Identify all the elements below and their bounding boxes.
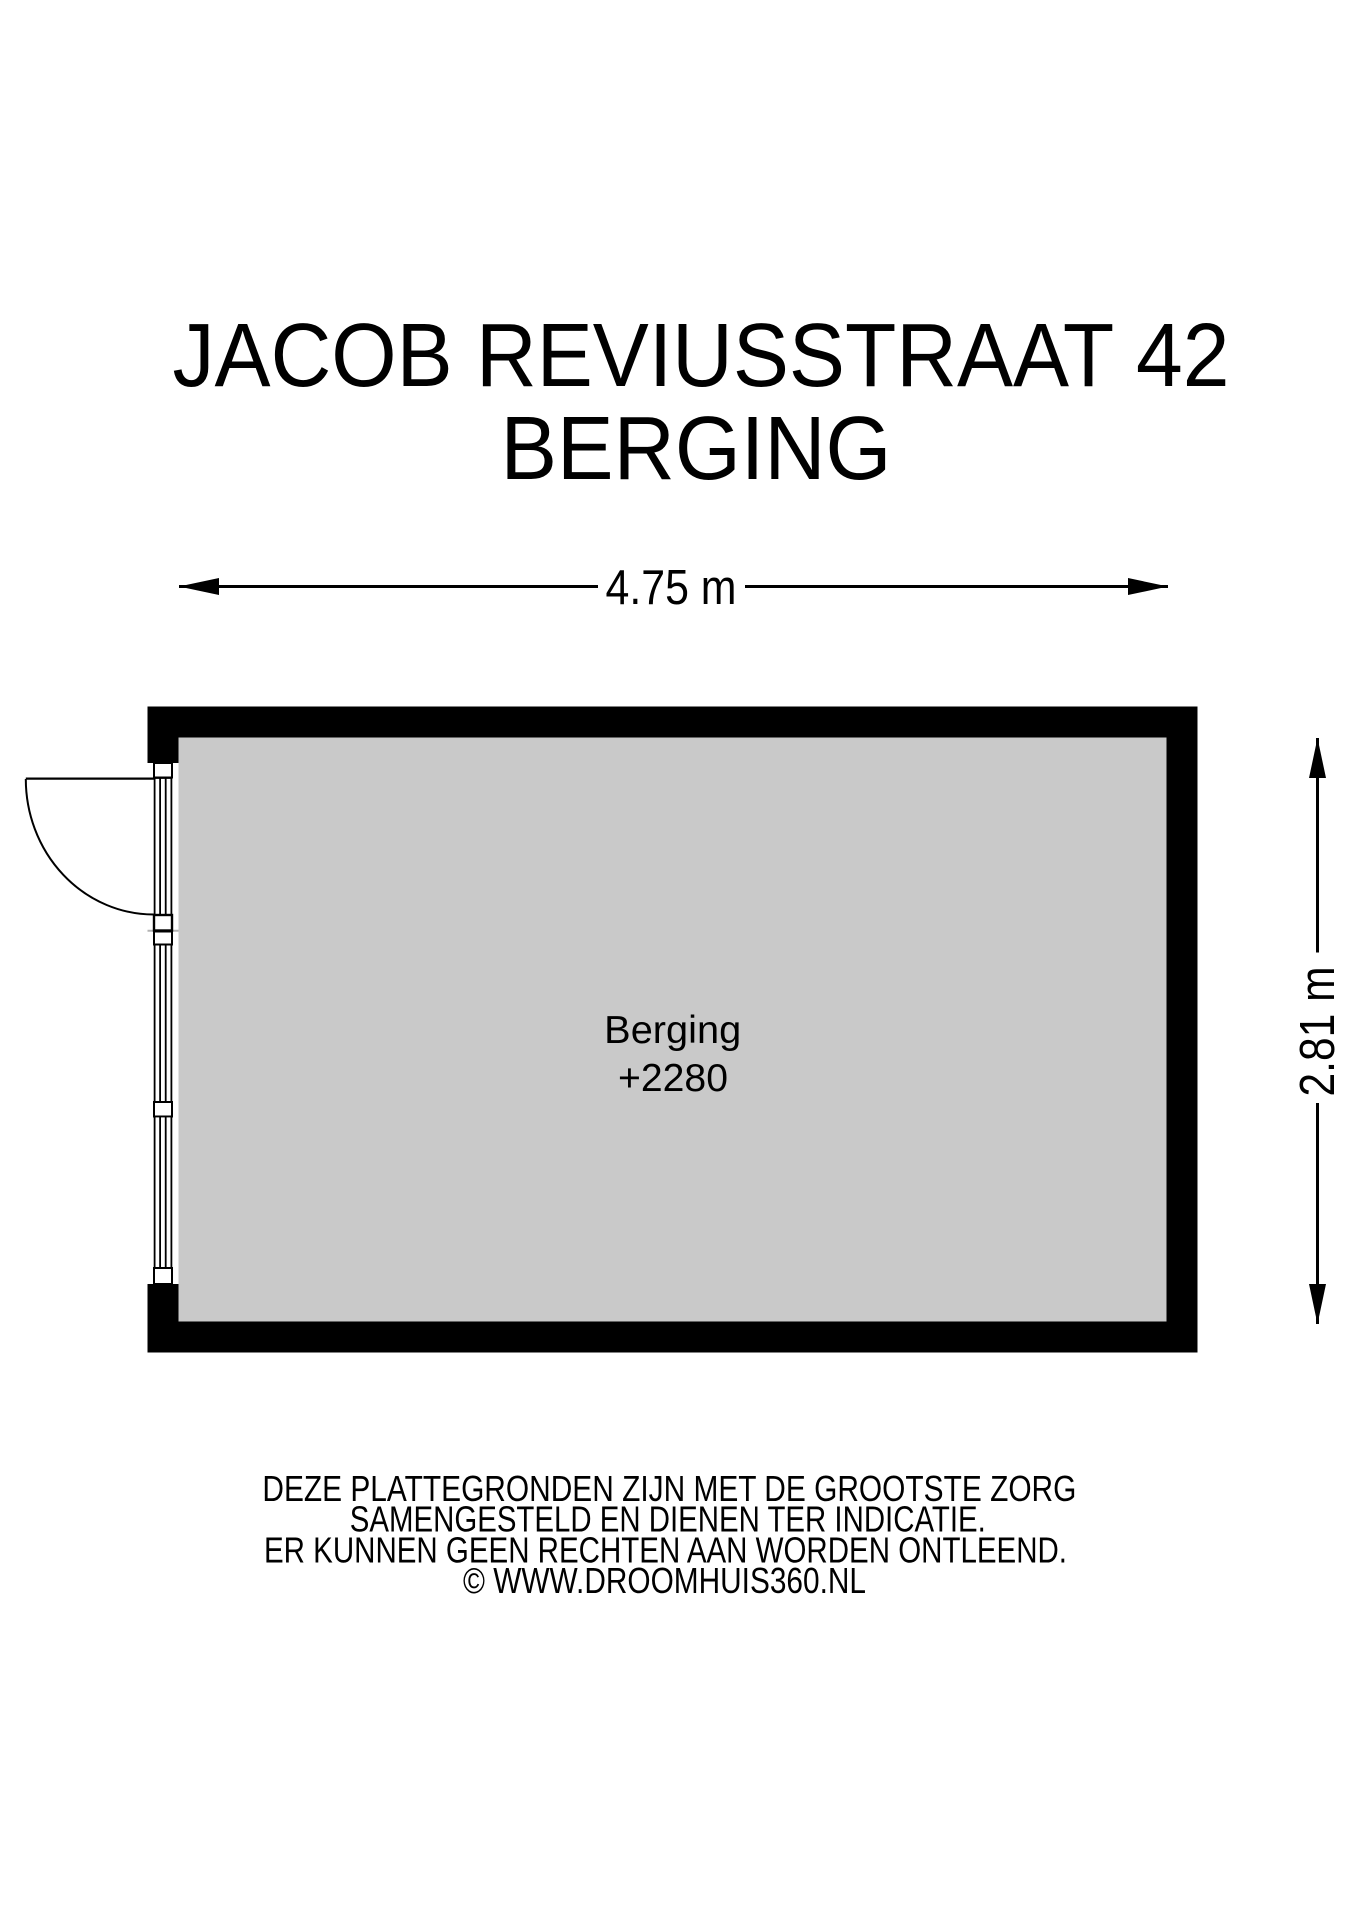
svg-text:4.75 m: 4.75 m [606, 561, 737, 615]
svg-text:JACOB REVIUSSTRAAT 42: JACOB REVIUSSTRAAT 42 [173, 306, 1230, 406]
svg-text:2.81 m: 2.81 m [1291, 967, 1345, 1097]
svg-text:BERGING: BERGING [501, 399, 892, 499]
svg-text:Berging: Berging [604, 1009, 741, 1052]
svg-text:© WWW.DROOMHUIS360.NL: © WWW.DROOMHUIS360.NL [463, 1560, 866, 1601]
svg-text:+2280: +2280 [618, 1057, 728, 1100]
